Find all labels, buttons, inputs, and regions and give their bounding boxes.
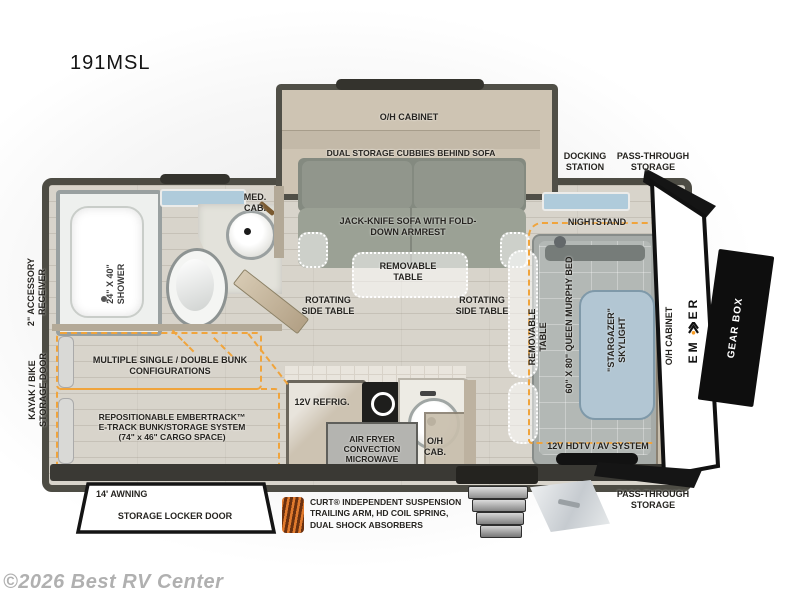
kitchen-oh-cab-label: O/H CAB. [417, 436, 453, 457]
shower-label: 24" X 40" SHOWER [105, 254, 127, 314]
coil-spring-icon [282, 497, 304, 533]
burner-icon [371, 392, 395, 416]
av-system-label: 12V HDTV / AV SYSTEM [538, 441, 658, 452]
sofa-armrest [298, 232, 328, 268]
entry-landing [456, 466, 538, 484]
floorplan-page: 191MSL AIR FRYER CONVECTION MICROWAVE [0, 0, 800, 600]
ember-wordmark-right: ER [686, 297, 700, 320]
bunk-cushion [58, 398, 74, 464]
roof-vent-icon [336, 79, 484, 90]
sofa-back-cushion [302, 161, 412, 209]
sofa-label: JACK-KNIFE SOFA WITH FOLD-DOWN ARMREST [326, 216, 490, 237]
bath-wall [274, 186, 284, 258]
microwave-label: AIR FRYER CONVECTION MICROWAVE [332, 434, 412, 464]
suspension-line: TRAILING ARM, HD COIL SPRING, [310, 508, 500, 519]
murphy-bed-label: 60" X 80" QUEEN MURPHY BED [564, 241, 576, 409]
bedroom-oh-cabinet-label: O/H CABINET [664, 300, 676, 372]
med-cab-label: MED. CAB. [238, 192, 272, 213]
page-title: 191MSL [70, 52, 151, 75]
bunk-cushion [58, 336, 74, 388]
bath-bunk-wall [52, 324, 282, 331]
etrack-line: E-TRACK BUNK/STORAGE SYSTEM [82, 422, 262, 432]
suspension-line: DUAL SHOCK ABSORBERS [310, 520, 500, 531]
suspension-label: CURT® INDEPENDENT SUSPENSION TRAILING AR… [310, 497, 500, 531]
bath-drain-icon [244, 228, 251, 235]
ember-logo: EM ER [685, 282, 701, 378]
nightstand-label: NIGHTSTAND [562, 217, 632, 228]
kayak-bike-door-label: KAYAK / BIKE STORAGE DOOR [27, 346, 49, 434]
rotating-table-left-label: ROTATING SIDE TABLE [297, 295, 359, 316]
kitchen-partition-wall [464, 380, 476, 472]
docking-station-label: DOCKING STATION [556, 151, 614, 172]
bath-roof-vent-icon [160, 174, 230, 184]
storage-locker-label: STORAGE LOCKER DOOR [110, 511, 240, 522]
sofa-armrest [500, 232, 530, 268]
pass-through-top-label: PASS-THROUGH STORAGE [612, 151, 694, 172]
skylight-label: "STARGAZER" SKYLIGHT [606, 305, 630, 375]
slideout-shelf-band [282, 130, 540, 149]
sofa-back-cushion [414, 161, 524, 209]
bath-sink-icon [226, 210, 276, 260]
oh-cabinet-label: O/H CABINET [334, 112, 484, 123]
etrack-label: REPOSITIONABLE EMBERTRACK™ E-TRACK BUNK/… [82, 412, 262, 442]
refrigerator-label: 12V REFRIG. [290, 397, 354, 408]
pass-through-bottom-label: PASS-THROUGH STORAGE [609, 489, 697, 510]
kitchen-faucet-icon [420, 391, 436, 396]
bunk-config-label: MULTIPLE SINGLE / DOUBLE BUNK CONFIGURAT… [90, 355, 250, 376]
toilet-lid [176, 259, 214, 311]
ember-logo-mark [687, 322, 700, 336]
bedroom-removable-table-label: REMOVABLE TABLE [527, 305, 549, 369]
gear-box-label: GEAR BOX [724, 288, 747, 369]
accessory-receiver-label: 2" ACCESSORY RECEIVER [26, 255, 48, 329]
removable-table-label: REMOVABLE TABLE [368, 261, 448, 282]
etrack-line: (74" x 46" CARGO SPACE) [82, 432, 262, 442]
etrack-line: REPOSITIONABLE EMBERTRACK™ [82, 412, 262, 422]
ember-wordmark-left: EM [686, 339, 700, 363]
rotating-table-right-label: ROTATING SIDE TABLE [451, 295, 513, 316]
suspension-line: CURT® INDEPENDENT SUSPENSION [310, 497, 500, 508]
awning-label: 14' AWNING [96, 489, 176, 500]
dual-storage-label: DUAL STORAGE CUBBIES BEHIND SOFA [294, 148, 528, 158]
watermark: ©2026 Best RV Center [3, 571, 223, 594]
